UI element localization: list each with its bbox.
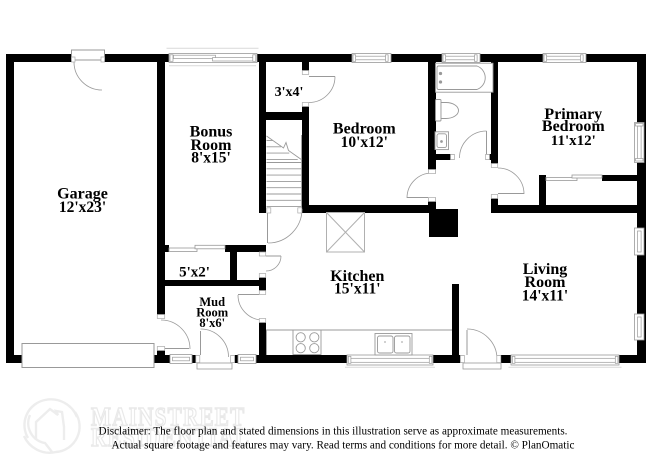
svg-text:12'x23': 12'x23' — [59, 199, 106, 216]
svg-text:3'x4': 3'x4' — [275, 85, 304, 100]
svg-text:Disclaimer: The floor plan and: Disclaimer: The floor plan and stated di… — [99, 426, 568, 438]
svg-text:5'x2': 5'x2' — [179, 264, 210, 280]
svg-text:Actual square footage and feat: Actual square footage and features may v… — [112, 440, 575, 452]
svg-text:8'x15': 8'x15' — [191, 150, 231, 167]
svg-text:15'x11': 15'x11' — [334, 281, 381, 298]
svg-text:14'x11': 14'x11' — [522, 287, 569, 304]
svg-text:10'x12': 10'x12' — [341, 134, 388, 151]
svg-text:8'x6': 8'x6' — [199, 316, 225, 330]
svg-text:11'x12': 11'x12' — [551, 133, 596, 149]
